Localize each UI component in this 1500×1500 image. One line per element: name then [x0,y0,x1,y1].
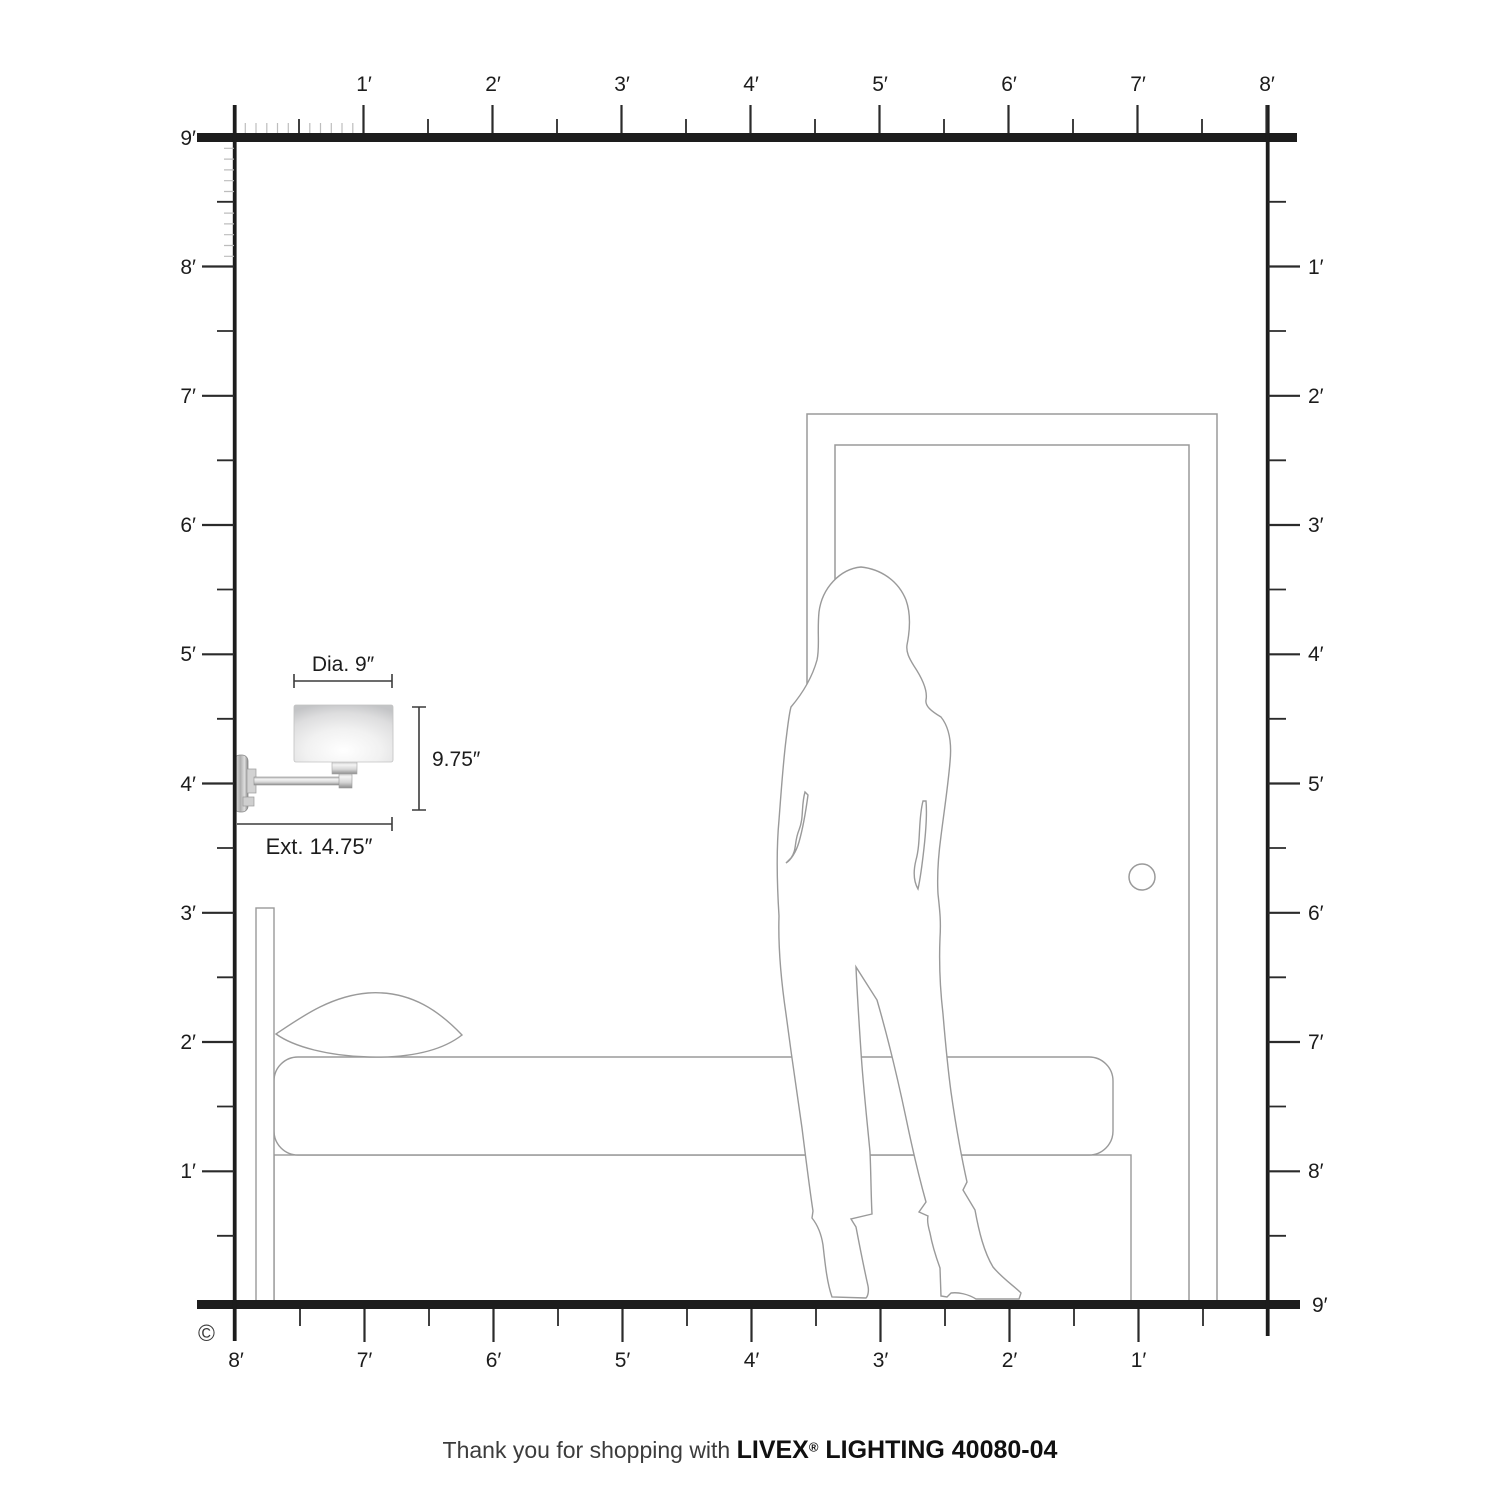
bottom-ruler-label: 5′ [615,1349,631,1372]
bed-pillow [276,993,462,1057]
top-ruler-label: 3′ [614,73,630,96]
right-ruler-label: 3′ [1308,514,1324,537]
top-ruler-label: 4′ [743,73,759,96]
extension-dimension-label: Ext. 14.75″ [266,834,373,859]
bottom-ruler-label: 7′ [357,1349,373,1372]
diameter-dimension [294,674,392,688]
left-ruler-labels: 9′ 8′ 7′ 6′ 5′ 4′ 3′ 2′ 1′ [180,127,196,1183]
left-ruler-label: 6′ [180,514,196,537]
right-ruler-label: 1′ [1308,256,1324,279]
right-ruler-label: 4′ [1308,643,1324,666]
top-ruler-label: 6′ [1001,73,1017,96]
footer-thankyou-text: Thank you for shopping with [443,1437,737,1463]
left-ruler-label: 9′ [180,127,196,150]
left-wall-line [233,105,237,1341]
sconce-arm [254,777,346,785]
top-ruler-label: 2′ [485,73,501,96]
sconce-bracket-foot [243,797,254,806]
sconce-shade [294,705,393,762]
diameter-dimension-label: Dia. 9″ [312,653,375,676]
registered-trademark-symbol: ® [809,1440,819,1455]
ceiling-line [197,133,1297,142]
left-ruler-label: 2′ [180,1031,196,1054]
footer-product-number: LIGHTING 40080-04 [818,1436,1057,1464]
top-ruler-label: 7′ [1130,73,1146,96]
left-ruler-label: 7′ [180,385,196,408]
top-ruler-label: 8′ [1259,73,1275,96]
right-ruler-labels: 1′ 2′ 3′ 4′ 5′ 6′ 7′ 8′ 9′ [1308,256,1328,1317]
right-ruler-half-ticks [1268,202,1286,1236]
sconce-socket-stem [339,772,352,788]
height-dimension-label: 9.75″ [432,748,481,771]
left-ruler-label: 5′ [180,643,196,666]
top-ruler-labels: 1′ 2′ 3′ 4′ 5′ 6′ 7′ 8′ [356,73,1275,96]
bottom-ruler-label: 8′ [228,1349,244,1372]
right-ruler-label: 6′ [1308,902,1324,925]
copyright-symbol: © [198,1320,215,1346]
top-ruler-label: 5′ [872,73,888,96]
wall-sconce [234,705,393,812]
door-knob [1129,864,1155,890]
bed-mattress [274,1057,1113,1155]
bottom-ruler-label: 3′ [873,1349,889,1372]
extension-dimension [237,817,392,831]
footer-caption: Thank you for shopping with LIVEX® LIGHT… [0,1436,1500,1465]
bottom-ruler-label: 6′ [486,1349,502,1372]
floor-line [197,1300,1300,1309]
left-ruler-label: 3′ [180,902,196,925]
left-ruler-label: 4′ [180,773,196,796]
bottom-ruler-label: 2′ [1002,1349,1018,1372]
bed-headboard [256,908,274,1301]
bottom-ruler-label: 1′ [1131,1349,1147,1372]
right-ruler-label: 5′ [1308,773,1324,796]
left-ruler-half-ticks [217,202,234,1236]
right-ruler-label: 7′ [1308,1031,1324,1054]
top-ruler-label: 1′ [356,73,372,96]
right-ruler-label: 2′ [1308,385,1324,408]
height-dimension [412,707,426,810]
bottom-ruler-labels: 8′ 7′ 6′ 5′ 4′ 3′ 2′ 1′ [228,1349,1146,1372]
diagram-canvas: Dia. 9″ 9.75″ Ext. 14.75″ 1′ 2′ 3′ 4′ 5′… [0,0,1500,1500]
right-ruler-label: 8′ [1308,1160,1324,1183]
left-ruler-label: 1′ [180,1160,196,1183]
bottom-ruler-major-ticks [365,1309,1139,1342]
bottom-ruler-label: 4′ [744,1349,760,1372]
footer-brand-name: LIVEX [737,1436,809,1464]
right-ruler-label: 9′ [1312,1294,1328,1317]
right-wall-line [1266,105,1270,1336]
left-ruler-label: 8′ [180,256,196,279]
sconce-socket-cap [332,761,357,774]
